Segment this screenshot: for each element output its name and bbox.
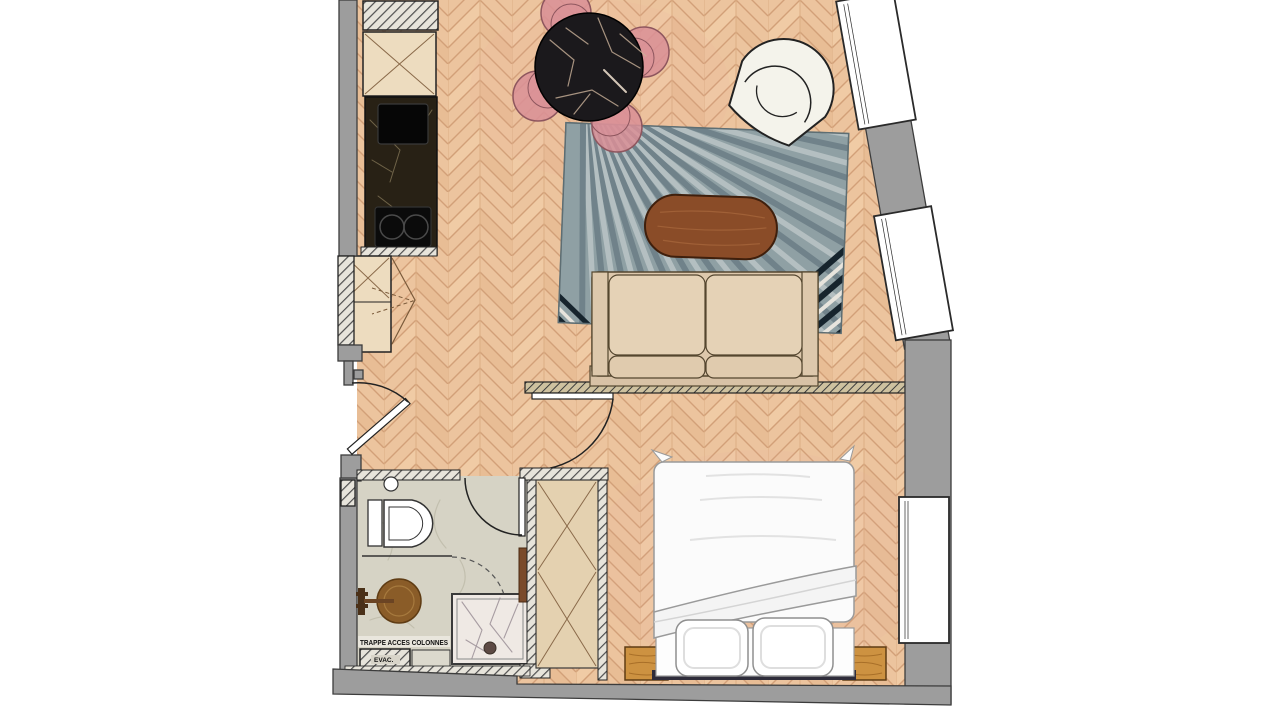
bed	[652, 446, 856, 676]
kitchen-counter	[365, 97, 437, 255]
wardrobe	[520, 480, 607, 680]
window	[899, 497, 949, 643]
technical-shaft	[363, 1, 438, 30]
floor-plan: TRAPPE ACCES COLONNES EVAC.	[0, 0, 1280, 720]
shower	[452, 594, 528, 664]
kitchen-sink	[378, 104, 428, 144]
sofa	[590, 272, 818, 386]
trappe-acces-label: TRAPPE ACCES COLONNES	[360, 638, 448, 647]
pillow	[676, 620, 748, 676]
shower-drain	[484, 642, 496, 654]
evac-label: EVAC.	[374, 657, 394, 664]
pillow	[753, 618, 833, 676]
cooktop	[375, 207, 431, 247]
coffee-table	[644, 194, 778, 261]
floor-plan-drawing: TRAPPE ACCES COLONNES EVAC.	[0, 0, 1280, 720]
door-handle-strip	[519, 548, 527, 602]
tall-cabinet	[363, 32, 436, 96]
bed-area	[625, 446, 886, 680]
flush-button	[384, 477, 398, 491]
